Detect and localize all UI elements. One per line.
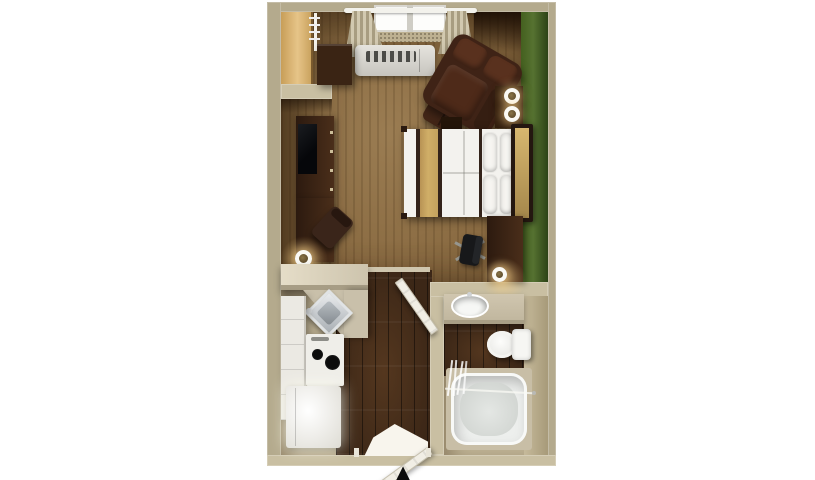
stove-vent xyxy=(311,337,329,341)
shower-rod-hook xyxy=(532,391,536,395)
stove xyxy=(306,334,344,386)
toilet-tank xyxy=(512,329,531,360)
headboard-panel xyxy=(515,128,529,218)
drawer-handle xyxy=(330,188,333,191)
bed-foot xyxy=(401,213,407,219)
vanity-sink xyxy=(451,294,489,318)
fridge-door-seam xyxy=(295,388,296,446)
window-sill xyxy=(371,32,449,42)
door-jamb xyxy=(426,448,431,457)
wall-left xyxy=(267,2,281,466)
wall-right xyxy=(548,2,556,466)
door-jamb xyxy=(354,448,359,457)
closet-niche-wall xyxy=(281,84,332,99)
pillow xyxy=(482,132,498,173)
sink-basin xyxy=(316,300,341,325)
ac-unit xyxy=(355,45,435,76)
drawer-handle xyxy=(330,169,333,172)
ac-panel-seam xyxy=(419,49,420,72)
closet-hanger xyxy=(309,38,320,40)
closet-hanger xyxy=(309,17,320,19)
vanity-faucet xyxy=(467,292,472,297)
drawer-handle xyxy=(330,131,333,134)
flat-tv xyxy=(298,124,317,174)
desk-lamp xyxy=(492,267,507,282)
bed-trim xyxy=(438,129,442,217)
nightstand-lamp xyxy=(504,88,520,104)
nightstand-lamp xyxy=(504,106,520,122)
ac-vent xyxy=(366,51,416,62)
closet-hanger xyxy=(309,31,320,33)
closet-niche-shadow xyxy=(281,99,332,113)
stove-burner xyxy=(325,355,340,370)
hall-threshold xyxy=(368,267,430,272)
floor-plan-canvas: ▲ xyxy=(0,0,815,480)
refrigerator xyxy=(286,386,341,448)
bed-crease xyxy=(443,172,479,174)
kitchen-faucet xyxy=(306,308,312,314)
gold-bed-runner xyxy=(420,129,438,217)
luggage-shelf xyxy=(317,44,352,85)
closet-hanger xyxy=(309,24,320,26)
office-chair xyxy=(452,232,488,270)
entrance-arrow-icon: ▲ xyxy=(392,467,414,480)
breakfast-bar-counter xyxy=(281,264,368,290)
pillow xyxy=(482,174,498,215)
drawer-handle xyxy=(330,150,333,153)
stove-burner xyxy=(312,349,323,360)
bed-foot xyxy=(401,126,407,132)
wardrobe-closet xyxy=(281,12,313,84)
